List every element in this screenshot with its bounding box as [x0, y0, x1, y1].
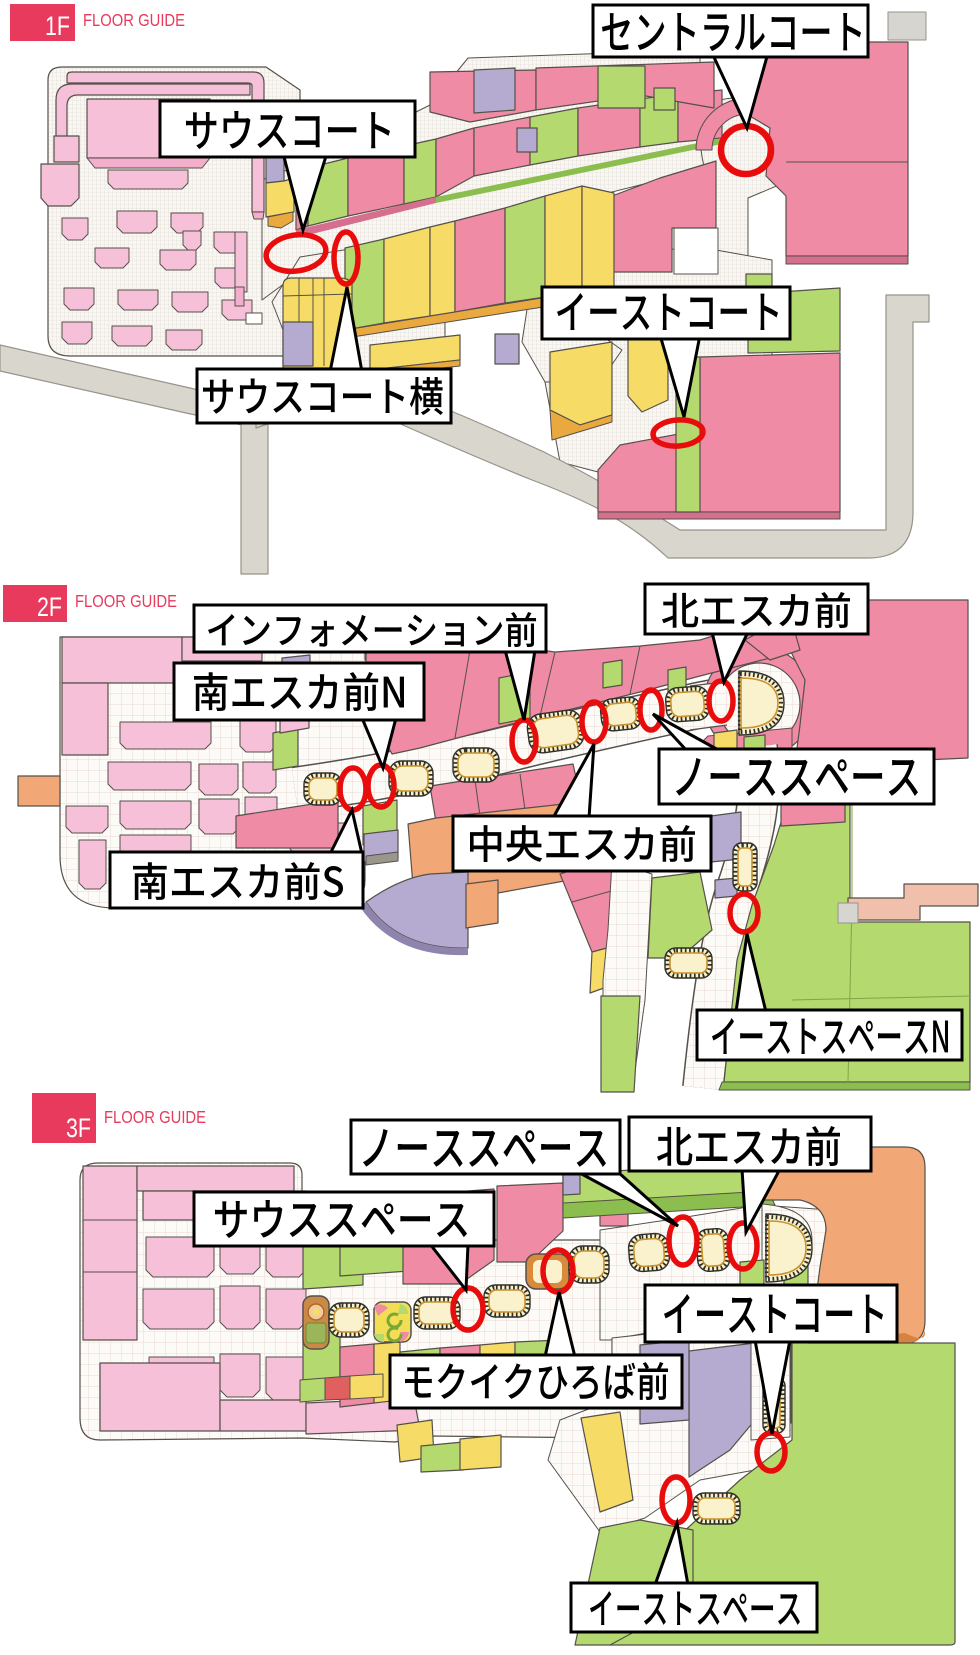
svg-text:FLOOR GUIDE: FLOOR GUIDE: [83, 10, 185, 30]
svg-text:2F: 2F: [37, 592, 62, 622]
svg-text:3F: 3F: [66, 1113, 91, 1143]
svg-text:FLOOR GUIDE: FLOOR GUIDE: [104, 1107, 206, 1127]
svg-text:FLOOR GUIDE: FLOOR GUIDE: [75, 591, 177, 611]
svg-text:1F: 1F: [45, 11, 70, 41]
